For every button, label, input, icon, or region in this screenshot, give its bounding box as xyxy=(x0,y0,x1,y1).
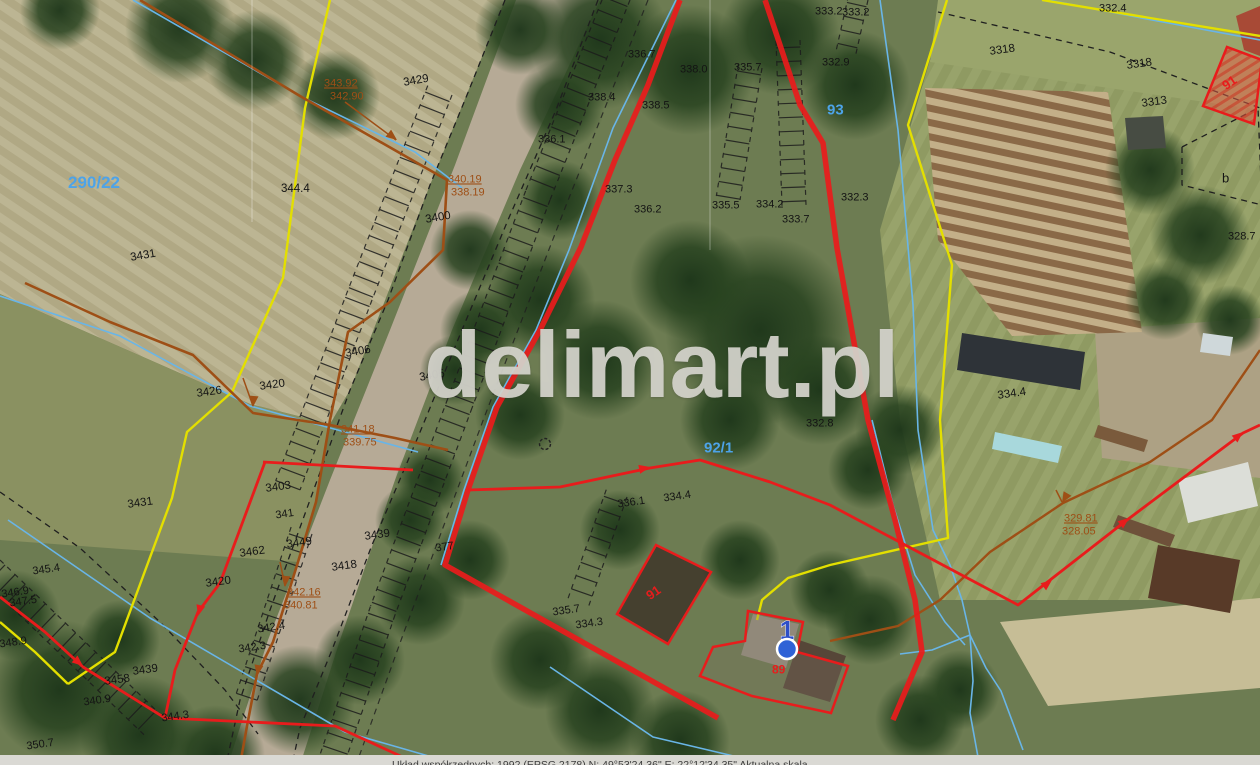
tree-canopy xyxy=(1125,260,1205,340)
map-label: 341 xyxy=(275,507,295,521)
map-label: 89 xyxy=(772,662,786,676)
tarp-light xyxy=(1200,333,1233,356)
map-label: 333.2 xyxy=(842,6,870,18)
map-label: 337.3 xyxy=(605,183,633,195)
map-label: 340.19 xyxy=(448,173,482,185)
house-gray xyxy=(1125,116,1166,150)
map-label: 328.05 xyxy=(1062,525,1096,537)
map-label: 343.92 xyxy=(324,77,358,89)
map-label: 332.9 xyxy=(822,56,850,68)
tree-canopy xyxy=(700,520,780,600)
map-label: 338.4 xyxy=(588,91,616,103)
tree-canopy xyxy=(475,370,565,460)
tree-canopy xyxy=(630,220,750,340)
map-label: 336.7 xyxy=(628,48,656,60)
map-label: 332.8 xyxy=(806,417,834,429)
map-label: 93 xyxy=(827,101,844,118)
map-label: 338.5 xyxy=(642,99,670,111)
map-label: 339.75 xyxy=(343,436,377,448)
map-label: 336.1 xyxy=(538,133,566,145)
map-viewport[interactable]: 290/229392/1344.434313429340034063405336… xyxy=(0,0,1260,765)
map-label: 341.18 xyxy=(341,423,375,435)
map-label: 344.4 xyxy=(281,183,310,195)
map-label: 342.90 xyxy=(330,90,364,102)
map-label: 332.4 xyxy=(1099,2,1127,14)
tree-canopy xyxy=(828,430,908,510)
map-label: 342.16 xyxy=(287,586,321,598)
map-overlay: 290/229392/1344.434313429340034063405336… xyxy=(0,0,1260,765)
map-label: 340.81 xyxy=(284,599,318,611)
map-label: 335.5 xyxy=(712,199,740,211)
map-label: 336.2 xyxy=(634,203,662,215)
map-label: 290/22 xyxy=(68,173,120,192)
map-label: 338.0 xyxy=(680,63,708,75)
tree-canopy xyxy=(790,550,870,630)
tree-canopy xyxy=(875,675,965,765)
status-text: Układ współrzędnych: 1992 (EPSG 2178) N:… xyxy=(0,757,808,765)
pin-marker-1[interactable]: 1 xyxy=(777,615,797,659)
map-label: 333.2 xyxy=(815,5,843,17)
status-bar: Układ współrzędnych: 1992 (EPSG 2178) N:… xyxy=(0,755,1260,765)
pin-dot xyxy=(777,639,797,659)
map-label: 332.3 xyxy=(841,191,869,203)
map-label: 335.7 xyxy=(734,61,762,73)
map-label: 92/1 xyxy=(704,439,733,456)
map-label: 329.81 xyxy=(1064,512,1098,524)
map-label: 377 xyxy=(435,540,455,554)
map-label: 333.7 xyxy=(782,213,810,225)
map-label: b xyxy=(1222,170,1229,185)
tree-canopy xyxy=(800,30,910,140)
map-label: 328.7 xyxy=(1228,230,1256,242)
map-label: 338.19 xyxy=(451,186,485,198)
map-label: 334.2 xyxy=(756,198,784,210)
